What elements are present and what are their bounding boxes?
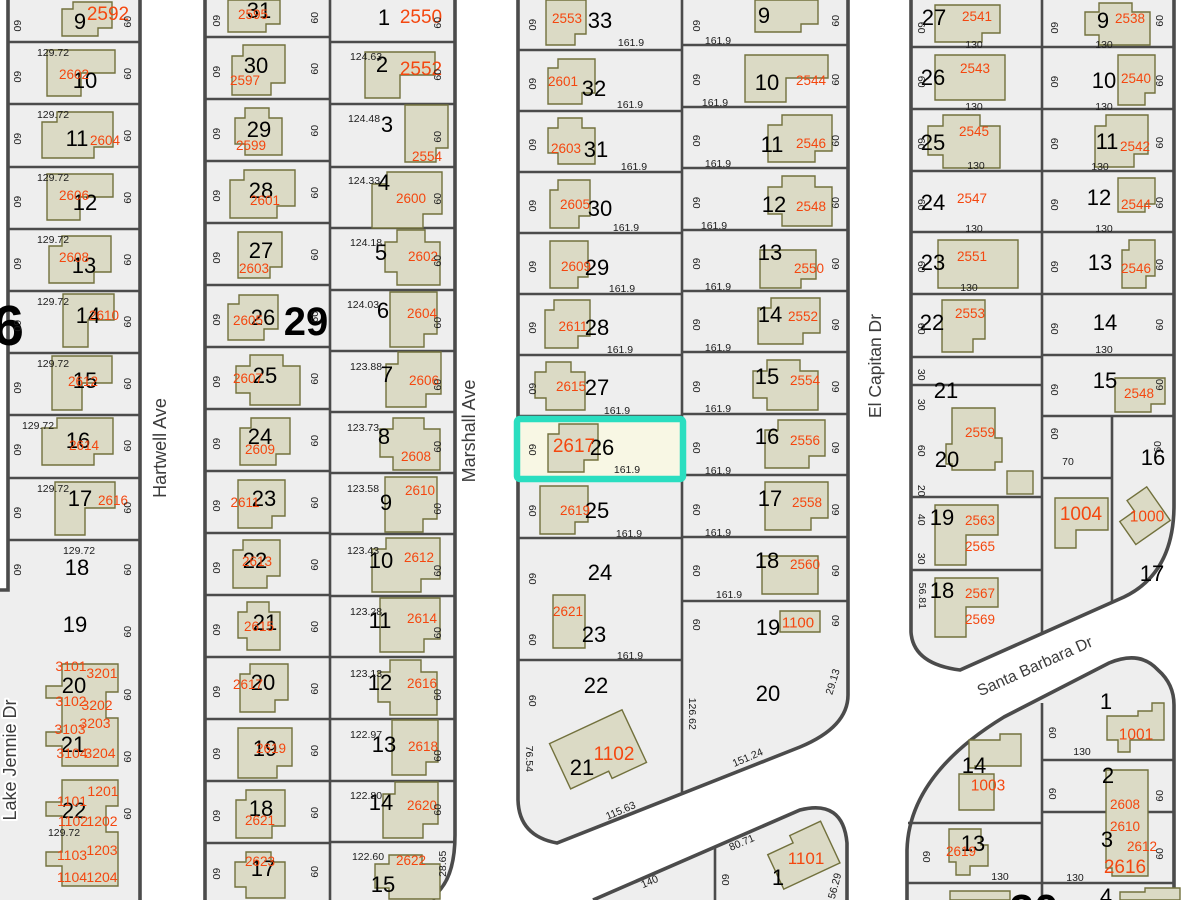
svg-text:60: 60 [309, 187, 321, 199]
svg-text:123.73: 123.73 [347, 422, 379, 434]
svg-text:3202: 3202 [81, 697, 112, 713]
svg-text:30: 30 [915, 399, 927, 411]
svg-text:60: 60 [690, 258, 702, 270]
svg-text:161.9: 161.9 [609, 283, 635, 295]
svg-text:60: 60 [432, 193, 444, 205]
svg-text:60: 60 [915, 22, 927, 34]
svg-text:60: 60 [915, 76, 927, 88]
svg-text:2551: 2551 [957, 249, 987, 264]
svg-text:2621: 2621 [553, 604, 583, 619]
svg-text:130: 130 [1095, 101, 1113, 113]
svg-text:2609: 2609 [245, 442, 275, 457]
svg-text:60: 60 [11, 507, 23, 519]
svg-text:32: 32 [582, 76, 606, 101]
svg-text:130: 130 [991, 871, 1009, 883]
svg-text:60: 60 [210, 190, 222, 202]
svg-text:60: 60 [432, 17, 444, 29]
svg-text:2611: 2611 [558, 319, 587, 334]
svg-text:161.9: 161.9 [607, 344, 633, 356]
svg-text:60: 60 [830, 319, 842, 331]
svg-text:2: 2 [1102, 763, 1114, 788]
svg-text:15: 15 [1093, 368, 1117, 393]
svg-text:1201: 1201 [87, 783, 118, 799]
svg-text:20: 20 [935, 447, 959, 472]
svg-text:60: 60 [122, 254, 134, 266]
svg-text:130: 130 [1073, 746, 1091, 758]
svg-text:60: 60 [1154, 379, 1166, 391]
svg-text:60: 60 [1048, 323, 1060, 335]
svg-text:60: 60 [830, 381, 842, 393]
svg-text:27: 27 [585, 375, 609, 400]
svg-text:60: 60 [122, 564, 134, 576]
svg-text:2610: 2610 [405, 483, 435, 498]
svg-text:60: 60 [210, 562, 222, 574]
svg-text:60: 60 [210, 810, 222, 822]
svg-text:2612: 2612 [68, 374, 98, 389]
svg-text:60: 60 [1154, 848, 1166, 860]
svg-text:161.9: 161.9 [705, 158, 731, 170]
svg-text:60: 60 [122, 130, 134, 142]
svg-text:60: 60 [210, 314, 222, 326]
svg-text:60: 60 [1046, 788, 1058, 800]
svg-text:161.9: 161.9 [701, 220, 727, 232]
svg-text:2603: 2603 [551, 141, 581, 156]
svg-text:18: 18 [755, 548, 779, 573]
svg-text:2619: 2619 [256, 741, 286, 756]
svg-text:60: 60 [915, 323, 927, 335]
svg-text:161.9: 161.9 [621, 161, 647, 173]
svg-text:7: 7 [381, 362, 393, 387]
svg-text:60: 60 [830, 135, 842, 147]
svg-text:2617: 2617 [233, 677, 263, 692]
svg-text:60: 60 [432, 689, 444, 701]
svg-text:60: 60 [122, 378, 134, 390]
svg-text:2623: 2623 [245, 854, 275, 869]
svg-text:2544: 2544 [796, 73, 827, 88]
svg-text:60: 60 [11, 196, 23, 208]
svg-text:60: 60 [309, 497, 321, 509]
svg-text:1001: 1001 [1119, 727, 1153, 744]
svg-text:123.43: 123.43 [347, 545, 379, 557]
svg-text:60: 60 [122, 68, 134, 80]
svg-text:60: 60 [1154, 790, 1166, 802]
svg-text:60: 60 [210, 500, 222, 512]
svg-text:60: 60 [526, 322, 538, 334]
svg-text:10: 10 [1092, 68, 1116, 93]
svg-text:161.9: 161.9 [617, 650, 643, 662]
svg-text:Marshall Ave: Marshall Ave [459, 380, 479, 483]
svg-text:129.72: 129.72 [37, 172, 69, 184]
svg-text:60: 60 [526, 444, 538, 456]
svg-text:60: 60 [1048, 428, 1060, 440]
svg-text:60: 60 [830, 74, 842, 86]
svg-text:60: 60 [830, 504, 842, 516]
svg-text:2550: 2550 [794, 261, 824, 276]
svg-text:2546: 2546 [1121, 261, 1151, 276]
svg-text:123.88: 123.88 [350, 361, 382, 373]
svg-text:129.72: 129.72 [37, 483, 69, 495]
svg-text:31: 31 [584, 137, 608, 162]
svg-text:60: 60 [1154, 259, 1166, 271]
svg-text:2545: 2545 [959, 124, 989, 139]
svg-text:60: 60 [1154, 15, 1166, 27]
svg-text:2612: 2612 [1127, 839, 1157, 854]
svg-text:Lake Jennie Dr: Lake Jennie Dr [0, 699, 20, 820]
svg-text:9: 9 [1097, 8, 1109, 33]
svg-text:60: 60 [526, 505, 538, 517]
svg-text:60: 60 [432, 255, 444, 267]
svg-text:8: 8 [378, 424, 390, 449]
svg-text:30: 30 [588, 196, 612, 221]
svg-text:60: 60 [526, 19, 538, 31]
svg-text:2619: 2619 [946, 844, 976, 859]
svg-text:161.9: 161.9 [705, 465, 731, 477]
svg-text:60: 60 [309, 683, 321, 695]
svg-text:1203: 1203 [86, 842, 117, 858]
svg-text:60: 60 [526, 261, 538, 273]
svg-text:40: 40 [915, 514, 927, 526]
svg-text:60: 60 [309, 621, 321, 633]
svg-text:60: 60 [690, 504, 702, 516]
svg-text:2616: 2616 [407, 676, 437, 691]
svg-text:130: 130 [1095, 223, 1113, 235]
svg-text:60: 60 [309, 249, 321, 261]
svg-text:2544: 2544 [1121, 197, 1152, 212]
svg-text:130: 130 [1095, 39, 1113, 51]
svg-text:130: 130 [1095, 344, 1113, 356]
svg-text:60: 60 [309, 559, 321, 571]
svg-text:60: 60 [830, 258, 842, 270]
svg-text:2554: 2554 [412, 149, 443, 164]
svg-text:27: 27 [249, 238, 273, 263]
svg-text:60: 60 [830, 565, 842, 577]
svg-text:129.72: 129.72 [37, 109, 69, 121]
svg-text:124.33: 124.33 [348, 175, 380, 187]
svg-text:9: 9 [380, 490, 392, 515]
svg-text:2548: 2548 [1124, 386, 1154, 401]
svg-text:60: 60 [915, 445, 927, 457]
svg-text:60: 60 [915, 199, 927, 211]
svg-text:1202: 1202 [86, 813, 117, 829]
svg-text:60: 60 [122, 502, 134, 514]
svg-text:130: 130 [960, 282, 978, 294]
svg-text:161.9: 161.9 [705, 35, 731, 47]
svg-text:2613: 2613 [242, 554, 272, 569]
svg-text:18: 18 [65, 555, 89, 580]
svg-text:60: 60 [122, 16, 134, 28]
svg-text:130: 130 [965, 223, 983, 235]
svg-text:2622: 2622 [396, 853, 426, 868]
svg-text:2617: 2617 [553, 436, 595, 457]
svg-text:14: 14 [1093, 310, 1117, 335]
svg-text:4: 4 [1100, 884, 1112, 900]
svg-text:130: 130 [965, 39, 983, 51]
svg-text:2565: 2565 [965, 539, 995, 554]
svg-text:60: 60 [122, 808, 134, 820]
svg-text:60: 60 [210, 686, 222, 698]
svg-text:30: 30 [915, 553, 927, 565]
svg-text:60: 60 [526, 383, 538, 395]
svg-text:2548: 2548 [796, 199, 826, 214]
svg-text:60: 60 [309, 807, 321, 819]
svg-text:129.72: 129.72 [37, 296, 69, 308]
svg-text:13: 13 [1088, 250, 1112, 275]
svg-text:60: 60 [432, 750, 444, 762]
svg-text:3104: 3104 [56, 745, 87, 761]
svg-text:2553: 2553 [955, 306, 985, 321]
svg-text:2611: 2611 [230, 495, 259, 510]
svg-text:2567: 2567 [965, 586, 995, 601]
svg-text:60: 60 [210, 868, 222, 880]
svg-text:60: 60 [210, 252, 222, 264]
svg-text:60: 60 [830, 442, 842, 454]
svg-text:161.9: 161.9 [702, 97, 728, 109]
svg-text:2538: 2538 [1115, 11, 1145, 26]
svg-text:60: 60 [690, 20, 702, 32]
svg-text:60: 60 [432, 565, 444, 577]
svg-text:24: 24 [588, 560, 612, 585]
svg-text:60: 60 [210, 748, 222, 760]
svg-text:60: 60 [309, 373, 321, 385]
svg-text:1: 1 [1100, 689, 1112, 714]
svg-text:70: 70 [1062, 456, 1074, 468]
svg-text:1003: 1003 [971, 778, 1005, 795]
svg-text:130: 130 [1091, 161, 1109, 173]
svg-text:28.65: 28.65 [437, 850, 449, 876]
svg-text:60: 60 [1048, 199, 1060, 211]
svg-text:19: 19 [63, 612, 87, 637]
svg-text:2569: 2569 [965, 612, 995, 627]
svg-text:60: 60 [122, 316, 134, 328]
svg-text:161.9: 161.9 [604, 405, 630, 417]
svg-text:2615: 2615 [556, 379, 586, 394]
svg-text:2560: 2560 [790, 557, 820, 572]
svg-text:2540: 2540 [1121, 71, 1151, 86]
svg-text:129.72: 129.72 [37, 234, 69, 246]
svg-text:129.72: 129.72 [22, 420, 54, 432]
svg-text:1: 1 [378, 5, 390, 30]
svg-text:11: 11 [761, 132, 784, 157]
svg-text:2606: 2606 [59, 188, 89, 203]
svg-text:60: 60 [719, 874, 731, 886]
svg-text:2552: 2552 [788, 309, 818, 324]
svg-text:60: 60 [1152, 441, 1164, 453]
svg-text:2614: 2614 [69, 438, 100, 453]
svg-text:1004: 1004 [1060, 504, 1103, 525]
svg-text:161.9: 161.9 [618, 37, 644, 49]
svg-text:2595: 2595 [238, 7, 268, 22]
svg-text:129.72: 129.72 [63, 545, 95, 557]
svg-text:15: 15 [371, 872, 395, 897]
svg-text:2605: 2605 [560, 197, 590, 212]
svg-text:2608: 2608 [59, 250, 89, 265]
svg-text:60: 60 [432, 379, 444, 391]
svg-text:60: 60 [11, 320, 23, 332]
svg-text:60: 60 [1048, 384, 1060, 396]
svg-text:60: 60 [122, 440, 134, 452]
svg-text:30: 30 [915, 369, 927, 381]
svg-text:9: 9 [74, 9, 86, 34]
svg-text:130: 130 [965, 101, 983, 113]
svg-text:14: 14 [962, 753, 986, 778]
svg-text:124.03: 124.03 [347, 299, 379, 311]
svg-text:16: 16 [755, 424, 779, 449]
svg-text:130: 130 [967, 160, 985, 172]
svg-text:13: 13 [758, 240, 782, 265]
svg-text:122.80: 122.80 [350, 790, 382, 802]
svg-text:20: 20 [915, 485, 927, 497]
svg-text:60: 60 [210, 128, 222, 140]
svg-text:60: 60 [122, 751, 134, 763]
svg-text:124.48: 124.48 [348, 113, 380, 125]
svg-text:161.9: 161.9 [705, 281, 731, 293]
svg-text:129.72: 129.72 [37, 358, 69, 370]
svg-text:28: 28 [585, 315, 609, 340]
svg-text:161.9: 161.9 [613, 222, 639, 234]
svg-text:60: 60 [309, 435, 321, 447]
svg-text:14: 14 [758, 302, 782, 327]
svg-text:60: 60 [1154, 197, 1166, 209]
svg-text:124.63: 124.63 [350, 51, 382, 63]
svg-text:15: 15 [755, 364, 779, 389]
svg-text:124.18: 124.18 [350, 237, 382, 249]
svg-text:17: 17 [68, 486, 92, 511]
svg-text:130: 130 [1066, 872, 1084, 884]
svg-text:60: 60 [526, 695, 538, 707]
svg-text:60: 60 [122, 192, 134, 204]
svg-text:3101: 3101 [55, 658, 86, 674]
svg-text:1: 1 [772, 865, 784, 890]
svg-text:2602: 2602 [59, 67, 89, 82]
svg-text:1101: 1101 [57, 793, 87, 809]
svg-text:2563: 2563 [965, 513, 995, 528]
svg-text:3: 3 [381, 112, 393, 137]
svg-text:60: 60 [1046, 727, 1058, 739]
svg-text:60: 60 [122, 626, 134, 638]
svg-text:9: 9 [758, 3, 770, 28]
svg-text:1103: 1103 [57, 847, 87, 863]
svg-text:60: 60 [526, 634, 538, 646]
svg-text:21: 21 [934, 378, 958, 403]
svg-text:60: 60 [526, 78, 538, 90]
svg-text:161.9: 161.9 [616, 528, 642, 540]
svg-text:161.9: 161.9 [614, 464, 640, 476]
svg-text:60: 60 [830, 615, 842, 627]
svg-text:2605: 2605 [233, 313, 263, 328]
svg-text:12: 12 [762, 192, 786, 217]
svg-text:60: 60 [11, 564, 23, 576]
svg-text:2559: 2559 [965, 425, 995, 440]
svg-text:20: 20 [756, 681, 780, 706]
svg-text:60: 60 [1154, 75, 1166, 87]
svg-text:122.60: 122.60 [352, 851, 384, 863]
svg-text:2604: 2604 [90, 133, 121, 148]
svg-text:60: 60 [309, 63, 321, 75]
svg-text:60: 60 [690, 74, 702, 86]
svg-text:1102: 1102 [594, 744, 635, 765]
svg-text:60: 60 [309, 745, 321, 757]
svg-text:60: 60 [122, 689, 134, 701]
svg-text:1204: 1204 [86, 869, 117, 885]
svg-text:60: 60 [432, 131, 444, 143]
svg-text:60: 60 [210, 15, 222, 27]
svg-text:22: 22 [584, 673, 608, 698]
svg-text:60: 60 [690, 565, 702, 577]
svg-text:60: 60 [432, 804, 444, 816]
svg-text:El Capitan Dr: El Capitan Dr [865, 314, 885, 418]
svg-text:60: 60 [526, 139, 538, 151]
svg-text:3103: 3103 [54, 721, 85, 737]
svg-text:60: 60 [309, 311, 321, 323]
svg-text:2616: 2616 [1104, 857, 1146, 878]
svg-text:1100: 1100 [782, 614, 814, 631]
svg-text:23: 23 [582, 622, 606, 647]
svg-text:60: 60 [1048, 76, 1060, 88]
svg-text:126.62: 126.62 [686, 698, 698, 730]
svg-text:10: 10 [755, 70, 779, 95]
svg-text:60: 60 [210, 438, 222, 450]
svg-text:60: 60 [1154, 319, 1166, 331]
svg-text:2556: 2556 [790, 433, 820, 448]
svg-text:60: 60 [11, 382, 23, 394]
svg-text:2547: 2547 [957, 191, 987, 206]
svg-text:1101: 1101 [788, 849, 825, 868]
svg-text:60: 60 [309, 866, 321, 878]
svg-text:3201: 3201 [86, 665, 117, 681]
svg-text:2608: 2608 [401, 449, 431, 464]
svg-text:2554: 2554 [790, 373, 821, 388]
svg-text:2597: 2597 [230, 73, 260, 88]
svg-text:2543: 2543 [960, 61, 990, 76]
svg-text:2541: 2541 [962, 9, 992, 24]
svg-text:60: 60 [432, 627, 444, 639]
svg-text:2607: 2607 [233, 371, 263, 386]
svg-text:161.9: 161.9 [705, 403, 731, 415]
svg-text:123.13: 123.13 [350, 668, 382, 680]
svg-text:60: 60 [690, 319, 702, 331]
svg-text:60: 60 [915, 138, 927, 150]
svg-text:2608: 2608 [1110, 797, 1140, 812]
svg-text:60: 60 [432, 69, 444, 81]
svg-text:60: 60 [920, 851, 932, 863]
svg-text:19: 19 [930, 505, 954, 530]
svg-text:2553: 2553 [552, 11, 582, 26]
svg-text:21: 21 [570, 755, 594, 780]
svg-text:76.54: 76.54 [523, 746, 535, 772]
svg-text:2614: 2614 [407, 611, 438, 626]
svg-text:2610: 2610 [1110, 819, 1140, 834]
svg-text:11: 11 [66, 126, 89, 151]
svg-text:60: 60 [11, 71, 23, 83]
svg-text:60: 60 [1048, 261, 1060, 273]
svg-text:19: 19 [756, 615, 780, 640]
svg-text:60: 60 [690, 442, 702, 454]
svg-text:60: 60 [11, 444, 23, 456]
svg-text:2601: 2601 [548, 74, 578, 89]
svg-text:60: 60 [1048, 138, 1060, 150]
svg-text:33: 33 [588, 8, 612, 33]
svg-text:2542: 2542 [1120, 139, 1150, 154]
svg-text:60: 60 [210, 376, 222, 388]
svg-text:2615: 2615 [244, 619, 274, 634]
svg-text:2599: 2599 [236, 138, 266, 153]
svg-text:161.9: 161.9 [705, 342, 731, 354]
svg-text:2609: 2609 [561, 259, 591, 274]
svg-text:18: 18 [930, 578, 954, 603]
svg-text:11: 11 [1096, 129, 1119, 154]
svg-text:60: 60 [432, 503, 444, 515]
svg-text:60: 60 [11, 258, 23, 270]
